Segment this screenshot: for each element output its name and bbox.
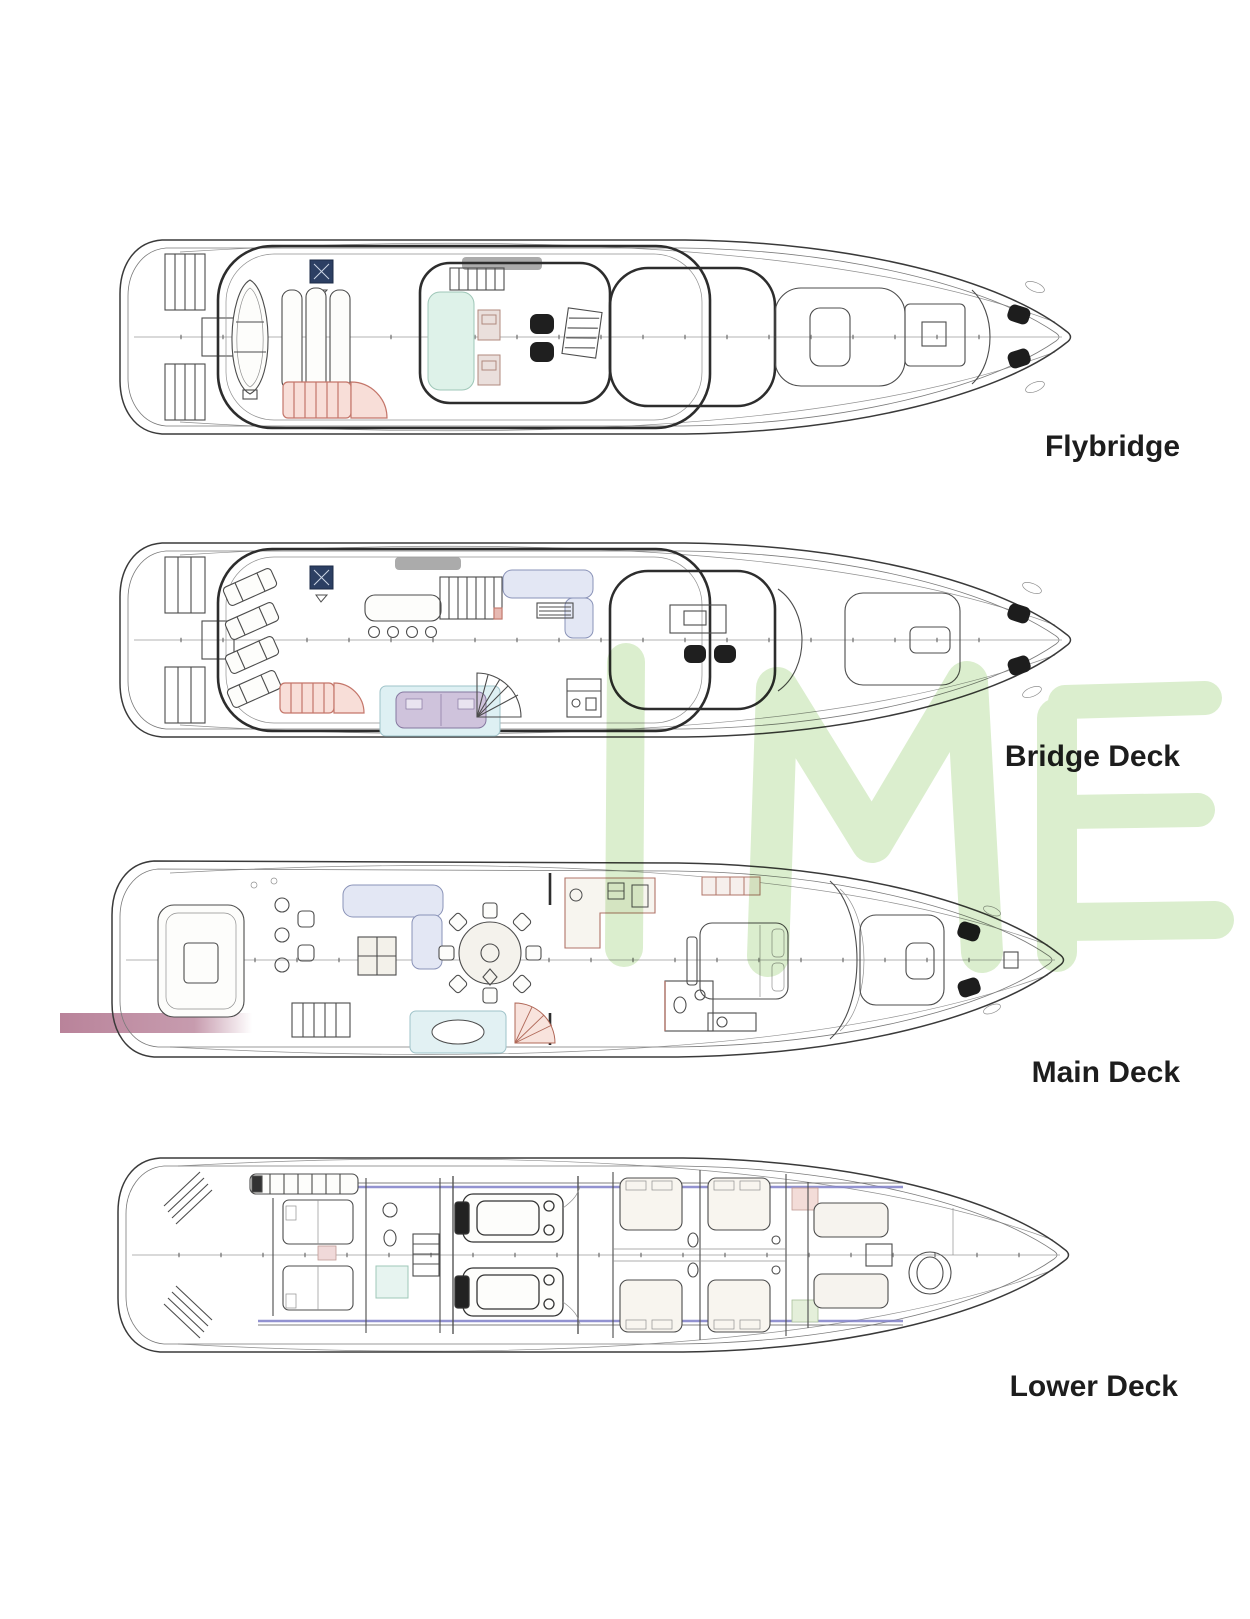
curved-staircase	[515, 1003, 555, 1043]
helm-console	[562, 308, 602, 358]
bar-counter	[365, 595, 441, 638]
master-cabin	[687, 877, 788, 1031]
salon-sofa	[343, 885, 443, 917]
helm-console	[670, 605, 726, 633]
engine-starboard	[455, 1268, 563, 1316]
dining-table	[439, 903, 541, 1003]
helm-seats	[530, 314, 554, 362]
stair-run	[440, 577, 502, 619]
sun-pads	[282, 288, 350, 392]
watermark-letter-e	[1057, 698, 1215, 952]
lounge-cabinets	[478, 310, 500, 385]
engine-port	[455, 1194, 563, 1242]
main-deck-plan	[60, 853, 1080, 1068]
flybridge-plan	[110, 230, 1080, 445]
mast-base	[395, 557, 461, 570]
guest-bed	[620, 1178, 682, 1230]
crew-quarters	[273, 1178, 440, 1333]
staircase-aft	[283, 382, 387, 418]
staircase-aft	[280, 683, 364, 713]
deck-label-flybridge: Flybridge	[1045, 430, 1180, 464]
aft-settee	[158, 878, 277, 1017]
navy-hatch	[310, 566, 333, 602]
lounge-sofa	[428, 292, 474, 390]
deck-label-lower-deck: Lower Deck	[1010, 1370, 1178, 1404]
tender-dinghy	[232, 280, 268, 399]
skylounge-sofa	[503, 570, 593, 598]
sun-loungers	[222, 567, 282, 708]
day-head	[665, 981, 713, 1031]
deck-label-main-deck: Main Deck	[1032, 1056, 1180, 1090]
sky-lounge-stairs	[450, 268, 504, 290]
passerelle	[250, 1174, 358, 1194]
lounge-rug	[410, 1011, 506, 1053]
lower-deck-plan	[108, 1148, 1078, 1363]
yacht-deck-plan-document: Flybridge	[0, 0, 1250, 1619]
pantry	[567, 679, 601, 717]
side-boarding-stairs	[292, 1003, 350, 1037]
coffee-table	[358, 937, 396, 975]
deck-label-bridge-deck: Bridge Deck	[1005, 740, 1180, 774]
galley	[565, 878, 655, 948]
card-table	[396, 692, 486, 728]
salon-armchairs	[275, 898, 314, 972]
bridge-deck-plan	[110, 533, 1080, 748]
